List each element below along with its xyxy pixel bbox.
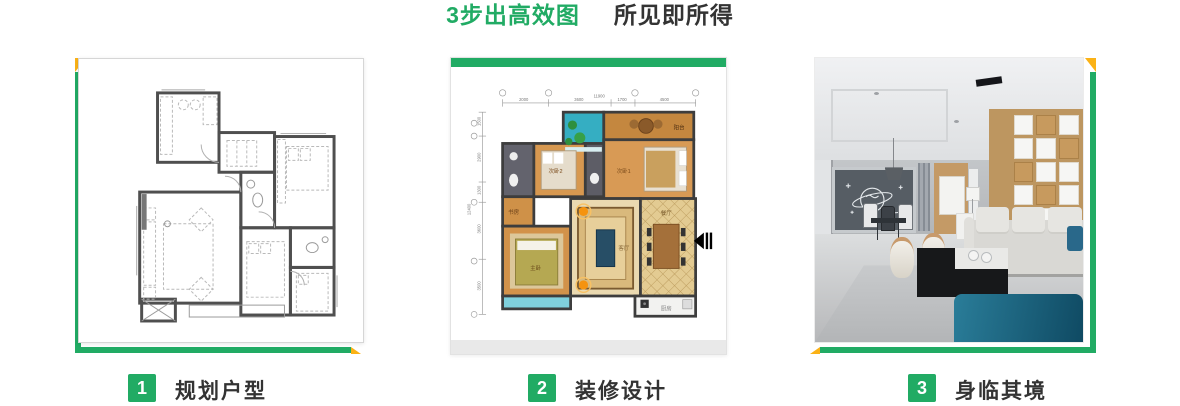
svg-text:客厅: 客厅 (618, 244, 630, 252)
card-color-floorplan: 2000 3600 1700 4500 11900 1500 2900 1300… (450, 57, 727, 355)
curtain (918, 163, 930, 231)
page-title: 3步出高效图所见即所得 (0, 0, 1180, 30)
title-highlight: 3步出高效图 (446, 2, 580, 28)
step-2-label: 装修设计 (575, 375, 667, 405)
green-frame-bottom (75, 347, 351, 353)
svg-text:次卧2: 次卧2 (548, 167, 562, 175)
step-1-badge: 1 (128, 374, 156, 402)
corner-accent-icon (351, 347, 361, 354)
svg-text:11900: 11900 (593, 93, 605, 98)
cad-floorplan-drawing (102, 77, 340, 323)
corner-accent-icon (810, 347, 820, 354)
step-2-badge: 2 (528, 374, 556, 402)
title-rest: 所见即所得 (614, 2, 734, 28)
step-3-label: 身临其境 (955, 375, 1047, 405)
card-render-photo (808, 55, 1100, 357)
svg-text:3600: 3600 (574, 97, 584, 102)
card-gray-bottombar (451, 340, 726, 354)
render-photo-image (814, 57, 1084, 343)
coffee-table (917, 248, 1008, 296)
green-frame-bottom (820, 347, 1096, 353)
card-green-topbar (451, 58, 726, 67)
svg-text:厨房: 厨房 (660, 305, 672, 313)
step-3-badge: 3 (908, 374, 936, 402)
color-floorplan-drawing: 2000 3600 1700 4500 11900 1500 2900 1300… (464, 86, 714, 324)
corner-accent-icon (1085, 58, 1096, 72)
svg-text:2000: 2000 (519, 97, 529, 102)
svg-text:餐厅: 餐厅 (660, 209, 672, 217)
sketch-floorplan-image (78, 58, 364, 343)
svg-text:主卧: 主卧 (530, 264, 542, 272)
svg-text:2900: 2900 (476, 152, 481, 162)
svg-text:1500: 1500 (476, 116, 481, 126)
svg-text:1300: 1300 (476, 185, 481, 195)
svg-text:阳台: 阳台 (673, 124, 685, 132)
svg-text:3500: 3500 (476, 281, 481, 291)
teal-bench (954, 294, 1083, 342)
svg-text:12400: 12400 (466, 203, 471, 215)
svg-text:次卧1: 次卧1 (616, 167, 630, 175)
card-sketch-floorplan (75, 55, 367, 357)
svg-text:4500: 4500 (659, 97, 669, 102)
svg-text:3600: 3600 (476, 224, 481, 234)
stool (890, 237, 914, 278)
green-frame-right (1090, 72, 1096, 353)
floor-lamp (966, 187, 980, 200)
step-1-label: 规划户型 (175, 375, 267, 405)
svg-text:1700: 1700 (617, 97, 627, 102)
svg-text:书房: 书房 (508, 208, 520, 216)
